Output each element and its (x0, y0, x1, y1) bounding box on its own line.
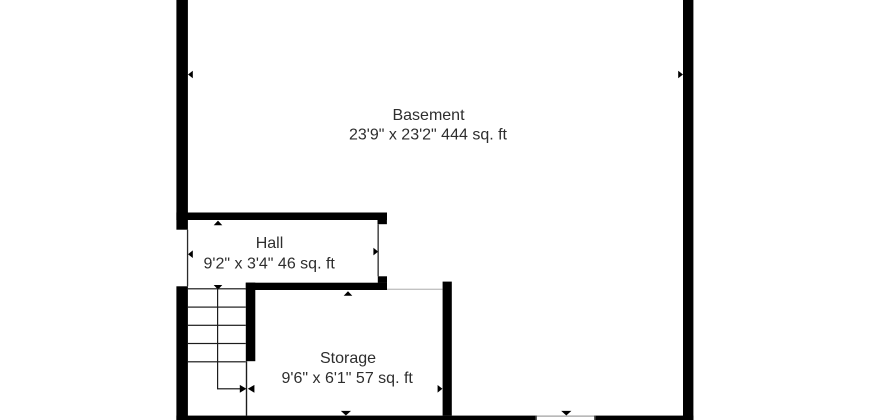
svg-text:Storage: Storage (320, 350, 376, 367)
svg-text:23'9" x 23'2" 444 sq. ft: 23'9" x 23'2" 444 sq. ft (349, 127, 508, 144)
svg-text:9'6" x 6'1" 57 sq. ft: 9'6" x 6'1" 57 sq. ft (282, 370, 414, 387)
svg-text:9'2" x 3'4" 46 sq. ft: 9'2" x 3'4" 46 sq. ft (204, 256, 336, 273)
svg-text:Hall: Hall (256, 235, 284, 252)
svg-text:Basement: Basement (392, 107, 465, 124)
